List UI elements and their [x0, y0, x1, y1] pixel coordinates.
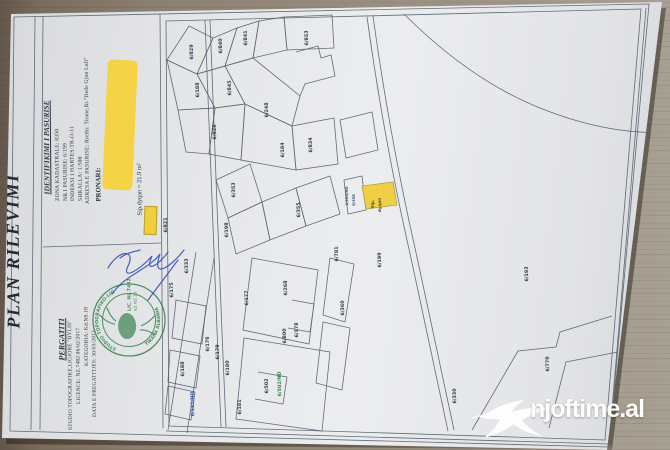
- parcel-label: 6/770: [545, 356, 551, 372]
- parcel-label: 6/333: [184, 258, 190, 273]
- parcel-label: 6/502: [264, 378, 270, 393]
- field-nr-pasurise: NR.I PASURISE: 6/199: [62, 143, 69, 201]
- page-borders: [10, 4, 649, 447]
- parcel-label: 6/800: [282, 328, 288, 344]
- parcel-label: 6/828: [212, 124, 218, 140]
- highlight-label-line2: dyqan: [377, 198, 382, 213]
- parcel-label: 6/360: [340, 300, 346, 316]
- parcel-label: 6/781: [334, 246, 340, 261]
- parcel-label: 6/175: [169, 282, 175, 297]
- parcel-label: 6/179: [215, 344, 221, 360]
- parcel-label: 6/353: [231, 182, 237, 197]
- parcel-label: 6/193: [524, 266, 530, 281]
- identification-heading: IDENTIFIKIMI I PASURISE: [42, 100, 52, 194]
- highlight-parcel: Sip. dyqan: [362, 182, 397, 212]
- parcel-label: 6/184: [280, 142, 286, 158]
- parcel-label: 6/821: [163, 217, 169, 232]
- field-zona-kadastrale: ZONA KADASTRALE: 8350: [54, 129, 61, 201]
- field-indeksi-hartes: INDEKSI I HARTES:TR-O-11: [69, 126, 76, 201]
- photo-scene: Sip. dyqan 6/8296/8406/8416/8536/1886/84…: [0, 0, 670, 450]
- parcel-label: 6/151/ND: [190, 392, 196, 417]
- legend-label: Sip.dyqan = 21.9 m²: [136, 163, 143, 215]
- parcel-label: 6/188: [180, 361, 186, 377]
- field-shkalla: SHKALLA: 1/500: [78, 156, 84, 201]
- parcel-labels: 6/8296/8406/8416/8536/1886/8456/2486/828…: [163, 30, 551, 416]
- parcel-label: 6/188: [195, 82, 201, 98]
- parcel-label: 6/200/ND: [345, 186, 349, 205]
- parcel-label: 6/268: [283, 280, 289, 296]
- parcel-label: 6/829: [189, 44, 195, 60]
- field-studio: STUDIO TOPOGRAFIKE,LIGJORE "BYLIS": [67, 320, 74, 430]
- parcel-label: 6/177: [244, 290, 250, 305]
- field-data-pregatitjes: DATA E PREGATITJES: 30/03/2012: [91, 330, 98, 417]
- watermark-logo: njoftime.al: [468, 386, 670, 450]
- parcel-label: 6/834: [308, 137, 314, 153]
- parcel-label: 6/180: [225, 360, 231, 376]
- parcel-label: 6/358: [352, 194, 356, 206]
- field-adresa: ADRESA E PASURISE: Rrethi: Tirane,Rr."De…: [84, 57, 91, 204]
- watermark-text: njoftime.al: [530, 395, 644, 424]
- parcel-label: 6/198: [224, 222, 230, 238]
- cadastral-map: Sip. dyqan 6/8296/8406/8416/8536/1886/84…: [0, 0, 670, 450]
- parcel-label: 6/502/ND: [277, 372, 283, 397]
- parcel-label: 6/199: [377, 252, 383, 268]
- parcel-label: 6/840: [218, 38, 224, 54]
- parcel-label: 6/841: [243, 30, 249, 45]
- parcel-label: 6/248: [264, 102, 270, 118]
- parcel-label: 6/853: [304, 30, 310, 45]
- parcel-label: 6/355: [296, 202, 302, 217]
- parcel-label: 6/845: [227, 80, 233, 95]
- parcel-label: 6/176: [205, 336, 211, 352]
- plan-document-paper: Sip. dyqan 6/8296/8406/8416/8536/1886/84…: [0, 0, 670, 450]
- parcel-label: 6/178: [294, 322, 300, 338]
- legend-swatch: [143, 206, 157, 235]
- parcel-label: 6/330: [452, 388, 458, 404]
- prepared-by-heading: PERGATITI: [57, 318, 66, 360]
- highlight-label-line1: Sip.: [370, 199, 375, 209]
- field-kategoria: KATEGORIA: Kd.NS.18: [83, 307, 90, 366]
- field-licence: LICENCE: NZ.7482 96/02/2017: [75, 328, 82, 404]
- parcel-label: 6/181: [237, 399, 243, 414]
- owner-name-highlight: [102, 59, 138, 190]
- page-title: PLAN RILEVIMI: [2, 173, 24, 328]
- road-lines: [168, 14, 670, 433]
